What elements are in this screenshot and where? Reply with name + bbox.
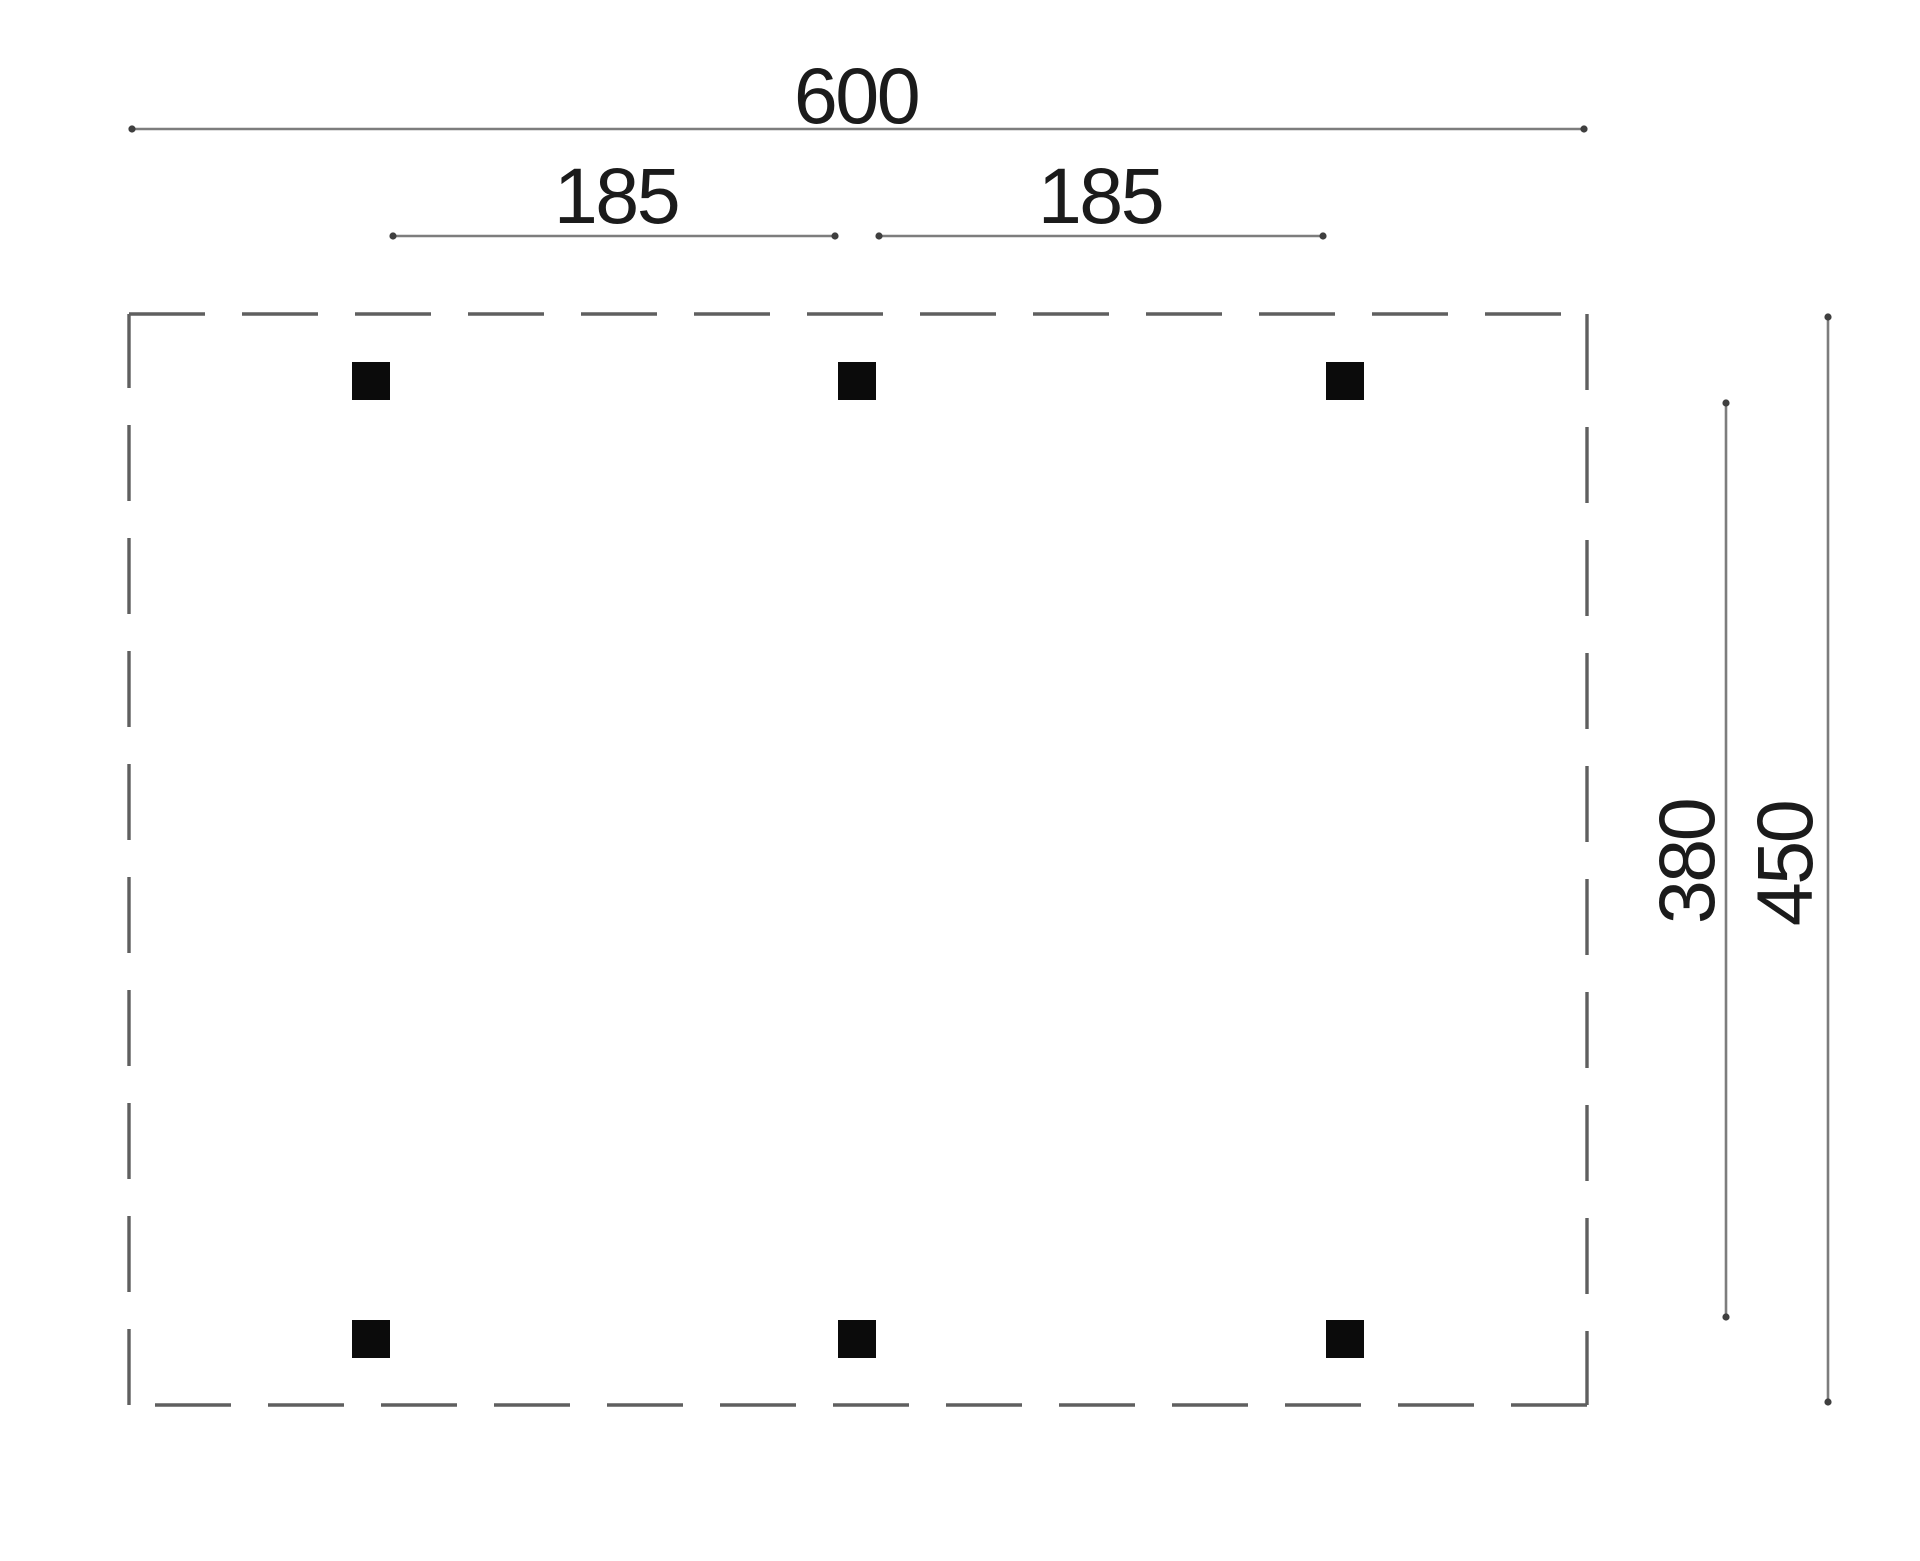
tick-icon bbox=[1580, 125, 1587, 132]
tick-icon bbox=[1722, 399, 1729, 406]
post-top-left bbox=[352, 362, 390, 400]
dimension-end-ticks bbox=[128, 125, 1831, 1405]
post-bottom-middle bbox=[838, 1320, 876, 1358]
tick-icon bbox=[128, 125, 135, 132]
left-spacing-label: 185 bbox=[554, 151, 678, 240]
dimension-labels: 600 185 185 380 450 bbox=[554, 51, 1829, 926]
tick-icon bbox=[1824, 313, 1831, 320]
tick-icon bbox=[389, 232, 396, 239]
post-top-right bbox=[1326, 362, 1364, 400]
post-markers bbox=[352, 362, 1364, 1358]
inner-depth-label: 380 bbox=[1642, 800, 1731, 924]
post-bottom-left bbox=[352, 1320, 390, 1358]
overall-depth-label: 450 bbox=[1740, 802, 1829, 926]
tick-icon bbox=[831, 232, 838, 239]
tick-icon bbox=[1722, 1313, 1729, 1320]
dashed-outline bbox=[129, 314, 1587, 1405]
post-bottom-right bbox=[1326, 1320, 1364, 1358]
tick-icon bbox=[1824, 1398, 1831, 1405]
plan-drawing: 600 185 185 380 450 bbox=[0, 0, 1920, 1561]
post-top-middle bbox=[838, 362, 876, 400]
dimension-lines bbox=[129, 129, 1828, 1405]
tick-icon bbox=[875, 232, 882, 239]
drawing-canvas: 600 185 185 380 450 bbox=[0, 0, 1920, 1561]
right-spacing-label: 185 bbox=[1038, 151, 1162, 240]
overall-width-label: 600 bbox=[794, 51, 918, 140]
tick-icon bbox=[1319, 232, 1326, 239]
